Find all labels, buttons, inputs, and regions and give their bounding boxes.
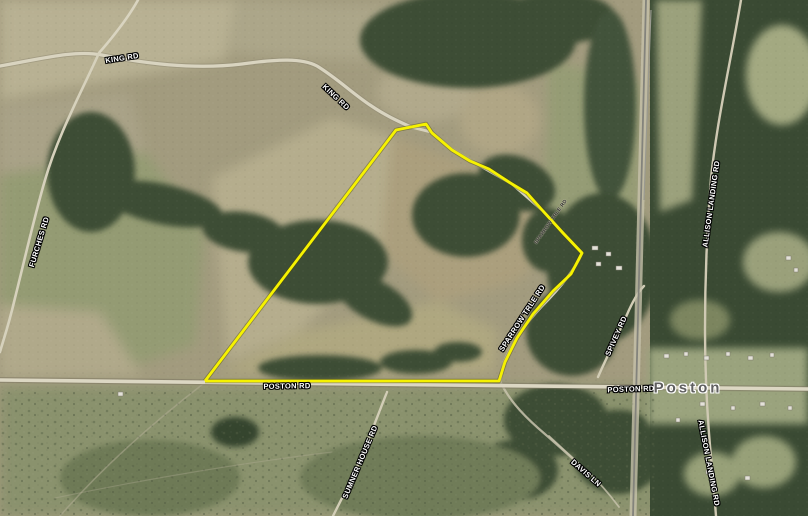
- aerial-map: KING RD KING RD FURCHES RD POSTON RD SPA…: [0, 0, 808, 516]
- grain-texture: [0, 0, 808, 516]
- map-canvas: [0, 0, 808, 516]
